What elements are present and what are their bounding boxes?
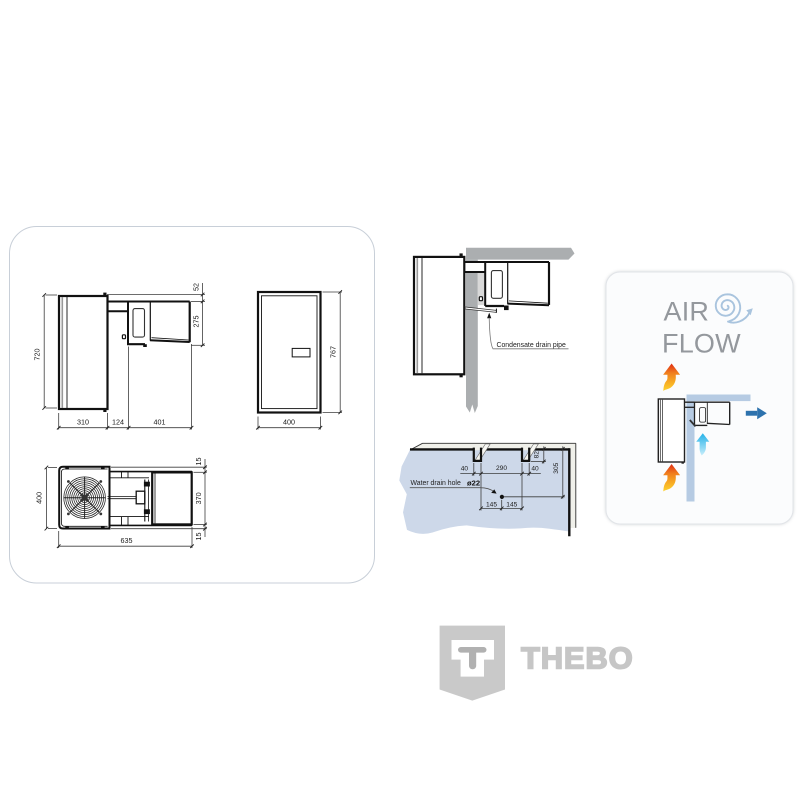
svg-text:52: 52 [192, 283, 201, 291]
svg-text:15: 15 [194, 458, 203, 466]
svg-text:Water drain hole: Water drain hole [411, 480, 461, 487]
svg-text:305: 305 [553, 462, 560, 473]
svg-text:145: 145 [486, 501, 497, 508]
svg-text:15: 15 [194, 533, 203, 541]
svg-text:Condensate drain pipe: Condensate drain pipe [497, 342, 567, 349]
svg-text:THEBO: THEBO [521, 640, 634, 675]
svg-text:720: 720 [33, 349, 42, 361]
svg-text:400: 400 [283, 418, 295, 427]
svg-text:82: 82 [534, 451, 541, 459]
svg-text:370: 370 [194, 492, 203, 504]
svg-text:290: 290 [496, 465, 507, 472]
svg-text:40: 40 [531, 466, 539, 473]
svg-text:40: 40 [461, 466, 469, 473]
svg-text:310: 310 [77, 418, 89, 427]
svg-text:AIR: AIR [664, 296, 710, 326]
svg-text:635: 635 [121, 536, 133, 545]
svg-text:ø22: ø22 [467, 478, 480, 487]
svg-text:145: 145 [506, 501, 517, 508]
svg-text:767: 767 [329, 346, 338, 358]
svg-text:124: 124 [112, 418, 124, 427]
svg-text:275: 275 [192, 316, 201, 328]
svg-text:400: 400 [35, 492, 44, 504]
svg-text:401: 401 [154, 418, 166, 427]
svg-text:FLOW: FLOW [662, 329, 741, 359]
